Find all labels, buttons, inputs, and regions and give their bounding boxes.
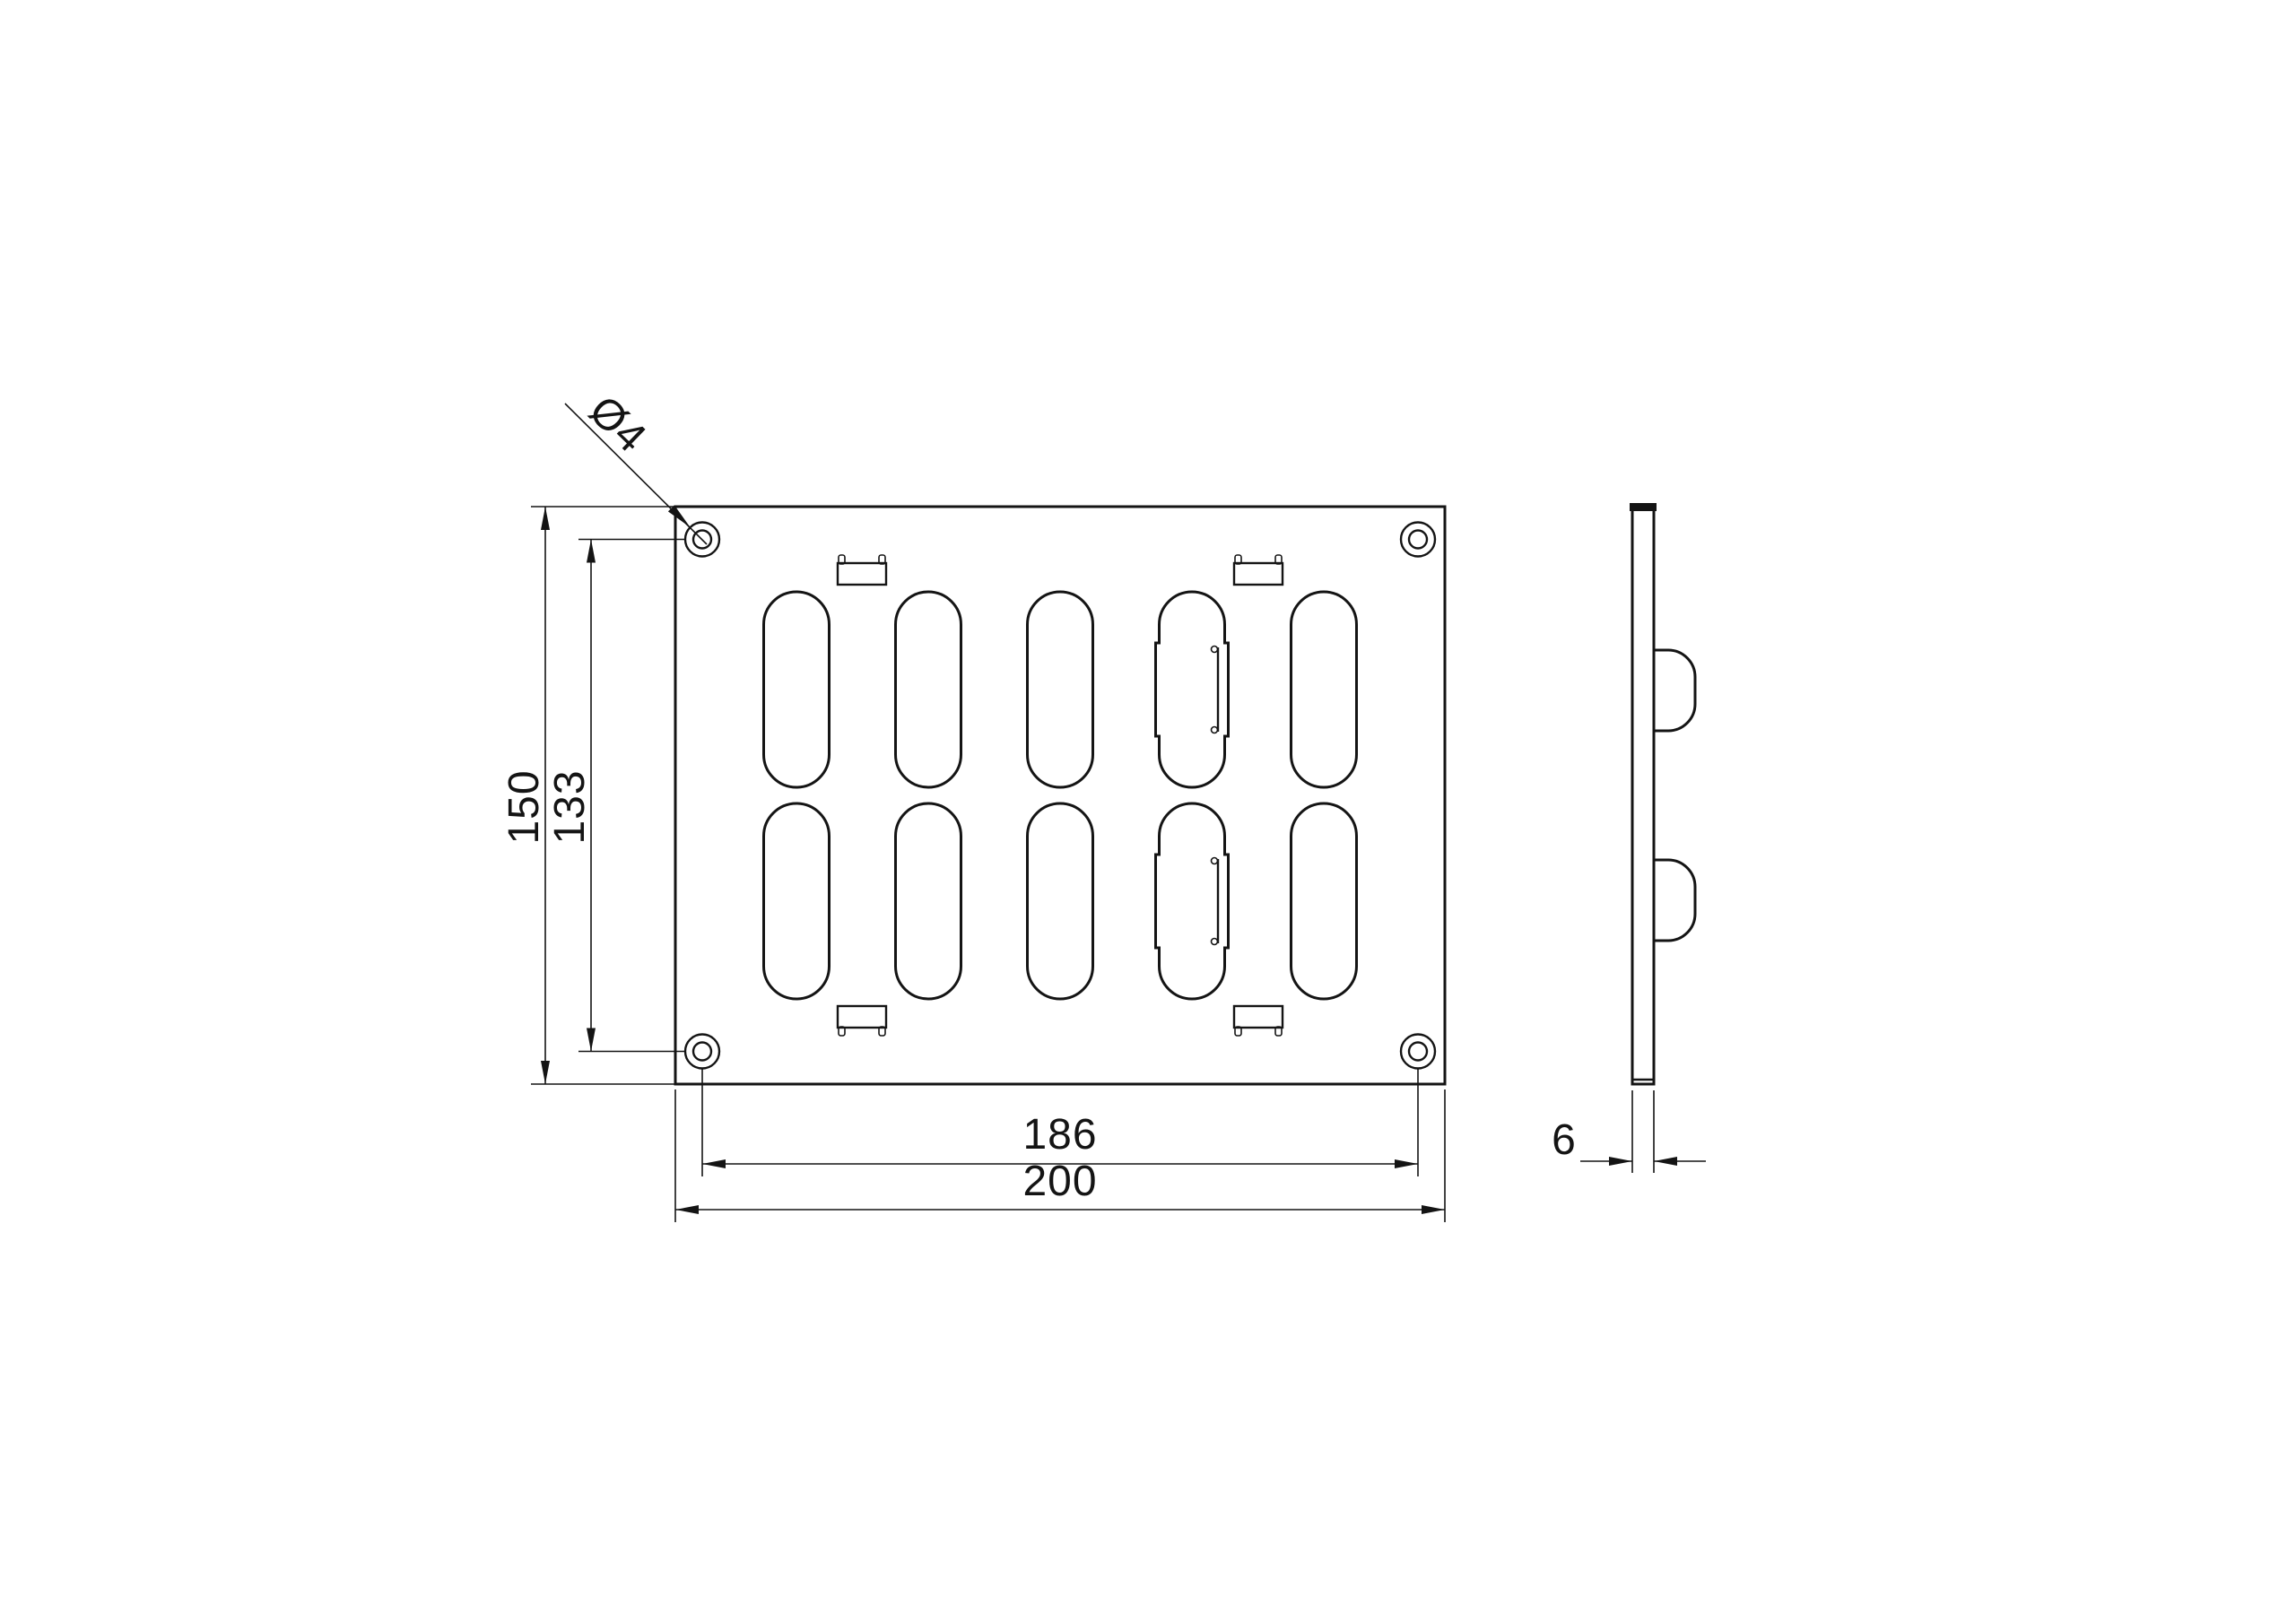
dim-hole-pitch-horizontal-label: 186 (1022, 1111, 1097, 1159)
mounting-hole-top-right (1401, 523, 1435, 557)
slider-knob-lower (1654, 860, 1695, 941)
retainer-tab-top-right (1234, 555, 1283, 585)
vent-slot (764, 803, 830, 999)
dim-thickness-label: 6 (1552, 1116, 1577, 1164)
technical-drawing: 150 133 186 200 (0, 0, 2296, 1623)
damper-hook (1212, 939, 1218, 945)
vent-slot (1028, 592, 1093, 787)
mounting-hole-bottom-right (1401, 1035, 1435, 1069)
retainer-tab-bottom-left (838, 1006, 886, 1036)
drawing-sheet: 150 133 186 200 (0, 0, 2296, 1623)
dim-overall-height-label: 150 (500, 769, 548, 844)
vent-slot (1028, 803, 1093, 999)
top-flange (1630, 503, 1657, 511)
vent-slot-with-damper (1156, 803, 1229, 999)
vent-slot-with-damper (1156, 592, 1229, 787)
damper-hook (1212, 647, 1218, 653)
plate-profile (1632, 507, 1654, 1084)
damper-hook (1212, 727, 1218, 733)
vent-slot (896, 592, 961, 787)
leader-hole-diameter-label: Ø4 (579, 386, 655, 462)
vent-slot (1291, 803, 1357, 999)
vent-slots-row-1 (764, 592, 1357, 787)
vent-slot (764, 592, 830, 787)
dim-hole-pitch-vertical-label: 133 (546, 769, 594, 844)
side-view (1630, 503, 1695, 1084)
slider-knob-upper (1654, 650, 1695, 731)
mounting-hole-bottom-left (685, 1035, 719, 1069)
vent-slot (896, 803, 961, 999)
vent-slot (1291, 592, 1357, 787)
front-view (675, 507, 1445, 1084)
dim-hole-pitch-vertical: 133 (546, 540, 685, 1052)
leader-hole-diameter: Ø4 (565, 386, 707, 544)
retainer-tab-bottom-right (1234, 1006, 1283, 1036)
damper-hook (1212, 858, 1218, 864)
dimensions: 150 133 186 200 (500, 386, 1706, 1222)
dim-thickness: 6 (1552, 1090, 1706, 1173)
retainer-tab-top-left (838, 555, 886, 585)
vent-slots-row-2 (764, 803, 1357, 999)
dim-overall-width-label: 200 (1022, 1158, 1097, 1205)
